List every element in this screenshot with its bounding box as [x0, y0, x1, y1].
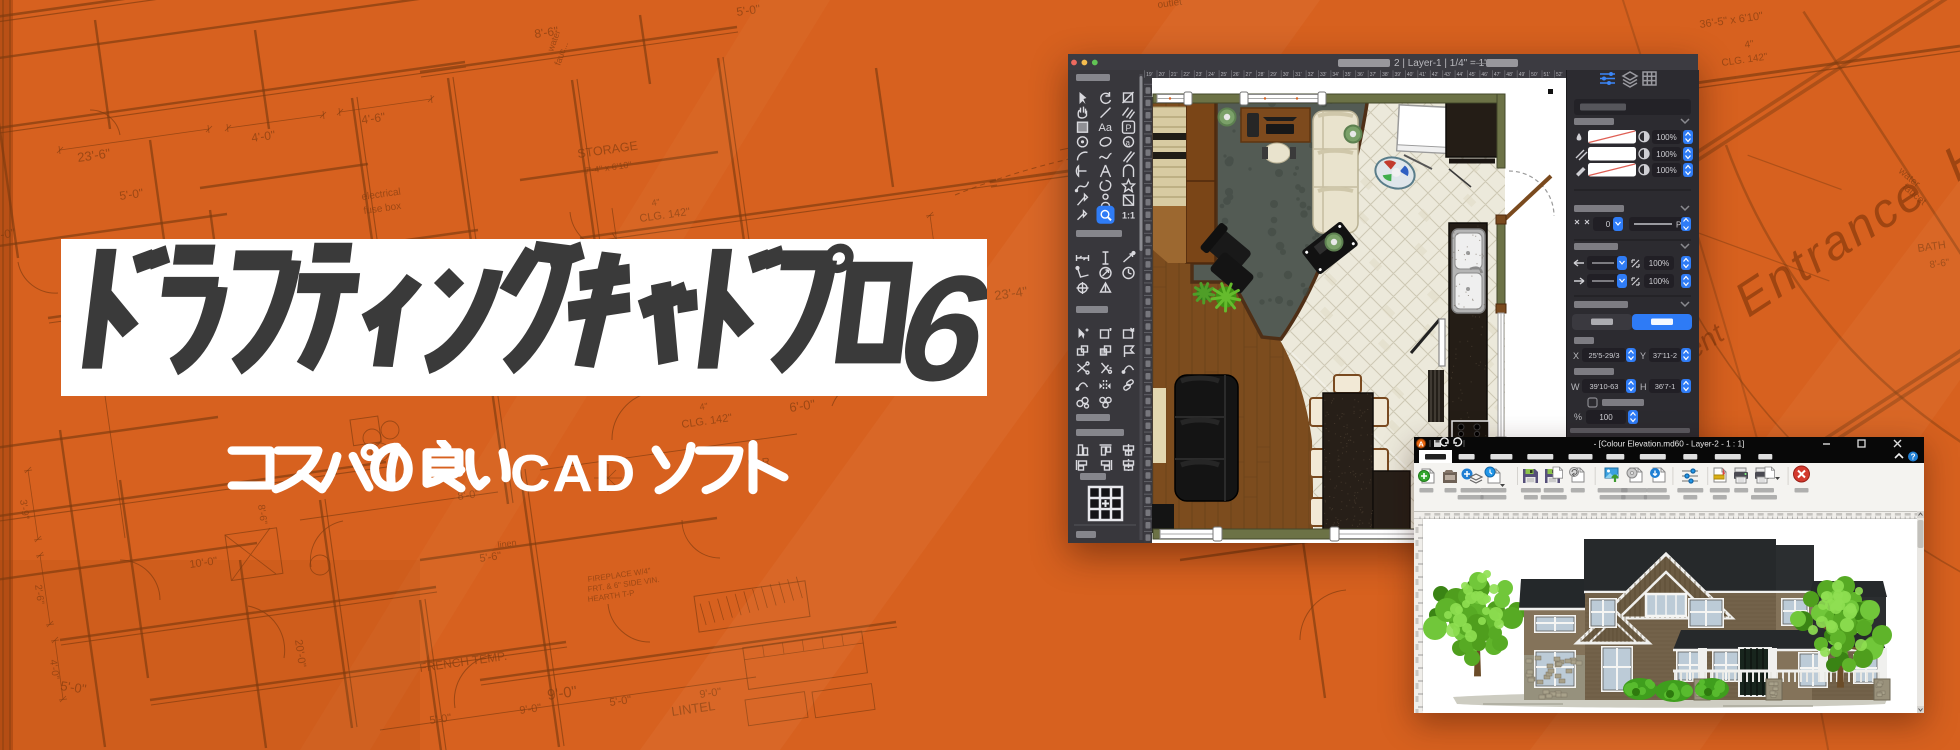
svg-text:P: P [1126, 123, 1132, 133]
svg-text:100%: 100% [1649, 259, 1669, 268]
svg-text:Y: Y [1640, 351, 1646, 361]
svg-text:X: X [1573, 351, 1579, 361]
svg-text:0: 0 [1606, 220, 1611, 229]
svg-text:100%: 100% [1649, 277, 1669, 286]
svg-text:4": 4" [699, 401, 709, 412]
svg-text:CAD: CAD [510, 445, 637, 502]
svg-text:- [Colour Elevation.md60 - Lay: - [Colour Elevation.md60 - Layer-2 - 1 :… [1594, 440, 1745, 449]
svg-text:?: ? [1911, 453, 1916, 462]
svg-text:P: P [1676, 221, 1681, 230]
svg-text:36'7-1: 36'7-1 [1655, 382, 1676, 391]
svg-text:1:1: 1:1 [1122, 210, 1135, 220]
svg-text:H: H [1640, 382, 1647, 392]
svg-text:%: % [1574, 412, 1582, 422]
svg-text:W: W [1571, 382, 1580, 392]
svg-text:37'11-2: 37'11-2 [1653, 351, 1677, 360]
svg-text:100%: 100% [1656, 133, 1676, 142]
svg-text:A: A [1418, 439, 1424, 448]
svg-text:—: — [1476, 58, 1486, 69]
svg-text:39'10-63: 39'10-63 [1590, 382, 1619, 391]
svg-text:25'5-29/3: 25'5-29/3 [1588, 351, 1619, 360]
svg-text:2 | Layer-1 | 1/4" = 1': 2 | Layer-1 | 1/4" = 1' [1394, 58, 1486, 69]
svg-text:100: 100 [1599, 413, 1613, 422]
svg-text:a: a [1126, 138, 1131, 147]
svg-text:Aa: Aa [1099, 122, 1113, 134]
svg-text:100%: 100% [1656, 150, 1676, 159]
svg-text:100%: 100% [1656, 166, 1676, 175]
